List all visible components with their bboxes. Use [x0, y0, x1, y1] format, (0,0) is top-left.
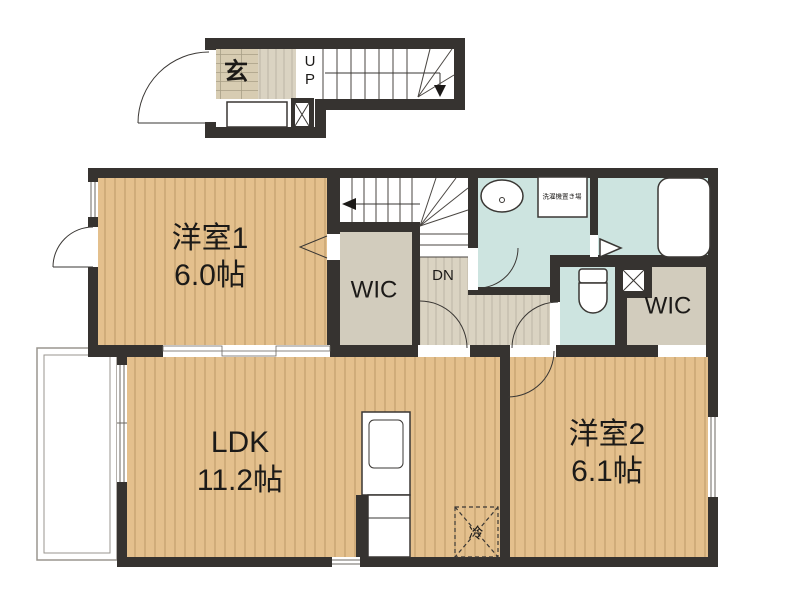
stairs-down-label: DN — [432, 267, 454, 284]
kitchen-stub-wall — [356, 495, 368, 557]
floorplan-page: 玄 U P — [0, 0, 800, 600]
room1-name: 洋室1 — [172, 222, 249, 255]
entrance-door-arc — [138, 52, 209, 123]
balcony-outline — [37, 348, 117, 560]
hallway-lower-floor — [468, 295, 550, 345]
door-opening-room2 — [510, 345, 556, 357]
first-floor-block: 玄 U P — [138, 38, 465, 138]
kitchen-counter — [356, 412, 410, 557]
floorplan-drawing: 玄 U P — [0, 0, 800, 600]
wic1-label: WIC — [351, 276, 398, 303]
up-letter-u: U — [305, 53, 316, 70]
door-opening-toilet — [550, 302, 560, 345]
stairwell-lower — [420, 222, 468, 257]
room2-size: 6.1帖 — [571, 455, 643, 488]
sliding-door-room1-ldk — [163, 345, 330, 357]
door-opening-wic2 — [658, 345, 706, 357]
window-room1-left — [88, 182, 98, 217]
window-room2-right — [708, 417, 718, 497]
door-opening-bath — [590, 235, 598, 257]
sink-icon — [481, 180, 523, 212]
bathtub-icon — [658, 178, 710, 257]
entrance-door-opening — [205, 50, 216, 122]
toilet-icon — [579, 269, 607, 313]
ldk-name: LDK — [211, 426, 269, 459]
entrance-closet — [227, 102, 287, 127]
fridge-label: 冷 — [468, 525, 483, 542]
window-ldk-bottom — [332, 557, 360, 567]
entrance-wood-floor — [258, 49, 296, 99]
washing-machine-label: 洗濯機置き場 — [543, 192, 583, 201]
balcony — [37, 348, 117, 560]
up-letter-p: P — [305, 71, 315, 88]
washroom-floor-lower — [478, 255, 550, 287]
door-opening-wic1 — [327, 234, 340, 260]
ldk-size: 11.2帖 — [197, 464, 283, 497]
room2-name: 洋室2 — [569, 418, 646, 451]
entrance-label: 玄 — [224, 57, 248, 85]
stairwell-upper — [340, 178, 468, 222]
door-arc-room1-exterior — [53, 227, 93, 267]
ldk-floor — [127, 357, 500, 557]
door-opening-ldk — [418, 345, 470, 357]
wic2-label: WIC — [645, 292, 692, 319]
door-opening-washroom — [468, 248, 478, 290]
room1-size: 6.0帖 — [174, 259, 246, 292]
door-opening-room1-left — [88, 227, 98, 267]
